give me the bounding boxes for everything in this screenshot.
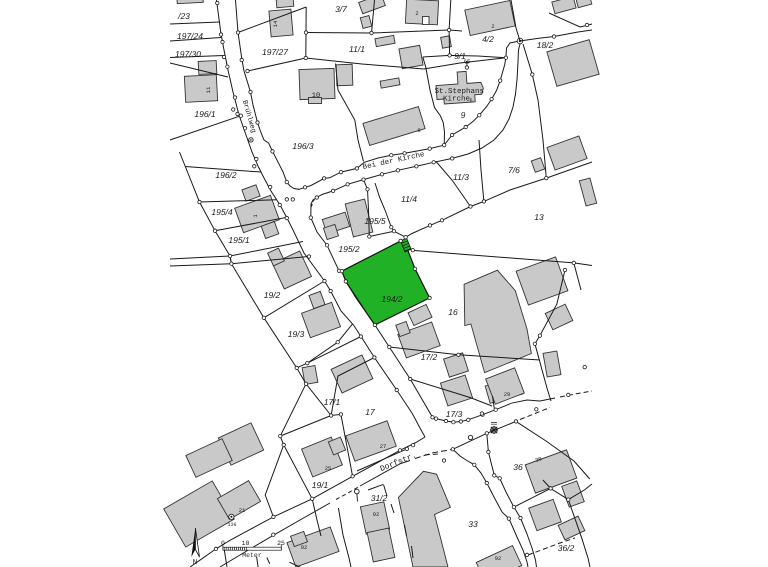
- svg-text:27: 27: [380, 443, 387, 450]
- svg-text:29: 29: [504, 391, 511, 398]
- svg-text:196/2: 196/2: [215, 170, 237, 180]
- svg-text:18/2: 18/2: [537, 40, 554, 50]
- svg-text:197/24: 197/24: [177, 31, 203, 41]
- svg-text:195/5: 195/5: [364, 216, 386, 226]
- svg-text:Meter: Meter: [242, 552, 262, 559]
- svg-text:36: 36: [513, 462, 523, 472]
- svg-text:4/2: 4/2: [482, 34, 494, 44]
- svg-text:194/2: 194/2: [381, 294, 403, 304]
- svg-text:/23: /23: [177, 11, 190, 21]
- svg-text:197/27: 197/27: [262, 47, 288, 57]
- svg-text:11/4: 11/4: [401, 194, 417, 204]
- svg-text:11/1: 11/1: [349, 44, 365, 54]
- svg-text:25: 25: [277, 540, 285, 547]
- svg-text:19/1: 19/1: [312, 480, 329, 490]
- svg-text:2: 2: [415, 10, 418, 17]
- svg-text:0: 0: [221, 540, 225, 547]
- svg-text:92: 92: [373, 511, 380, 518]
- svg-text:65: 65: [464, 58, 471, 65]
- svg-text:11/3: 11/3: [453, 172, 469, 182]
- svg-text:92: 92: [301, 544, 308, 551]
- svg-text:31/2: 31/2: [371, 493, 388, 503]
- svg-text:21: 21: [239, 507, 246, 514]
- svg-text:17: 17: [365, 407, 375, 417]
- svg-text:19/2: 19/2: [264, 290, 281, 300]
- svg-text:2: 2: [491, 23, 494, 30]
- svg-text:17/1: 17/1: [324, 397, 341, 407]
- svg-text:10: 10: [242, 540, 250, 547]
- svg-text:14: 14: [272, 20, 279, 27]
- svg-text:17/3: 17/3: [446, 409, 463, 419]
- svg-text:25: 25: [325, 465, 332, 472]
- svg-text:36/2: 36/2: [558, 543, 575, 553]
- svg-text:197/30: 197/30: [175, 49, 201, 59]
- svg-text:195/2: 195/2: [338, 244, 360, 254]
- svg-text:92: 92: [495, 555, 502, 562]
- svg-text:7/6: 7/6: [508, 165, 520, 175]
- svg-text:N: N: [193, 559, 198, 567]
- svg-text:11: 11: [205, 86, 212, 93]
- svg-text:17/2: 17/2: [421, 352, 438, 362]
- svg-text:8: 8: [417, 127, 420, 134]
- svg-text:136: 136: [227, 522, 236, 528]
- svg-text:16: 16: [448, 307, 458, 317]
- svg-text:10: 10: [312, 92, 320, 100]
- svg-text:3/7: 3/7: [335, 4, 347, 14]
- svg-text:195/4: 195/4: [211, 207, 233, 217]
- svg-text:9: 9: [461, 110, 466, 120]
- svg-text:196/1: 196/1: [194, 109, 216, 119]
- svg-text:Kirche: Kirche: [443, 95, 470, 103]
- svg-text:33: 33: [468, 519, 478, 529]
- svg-text:13: 13: [534, 212, 544, 222]
- svg-text:195/1: 195/1: [228, 235, 250, 245]
- svg-text:19/3: 19/3: [288, 329, 305, 339]
- svg-text:196/3: 196/3: [292, 141, 314, 151]
